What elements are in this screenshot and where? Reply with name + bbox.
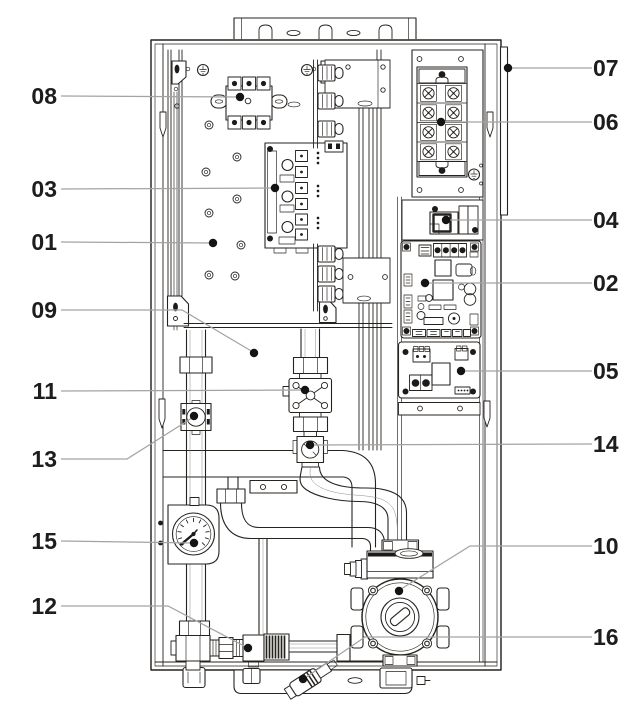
callout-label-14: 14	[593, 431, 619, 457]
callout-label-06: 06	[593, 109, 619, 135]
connector-pcb	[265, 141, 347, 253]
callout-dot-06	[437, 118, 445, 126]
callout-dot-15	[190, 539, 198, 547]
callout-dot-09	[250, 349, 258, 357]
pcb-mounting-strip	[399, 403, 481, 416]
callout-dot-12	[244, 644, 252, 652]
callout-label-12: 12	[31, 593, 57, 619]
callout-label-04: 04	[593, 207, 619, 233]
callout-label-03: 03	[31, 176, 57, 202]
boiler-parts-diagram: 08030109111315120706040205141016	[0, 0, 634, 709]
callout-label-16: 16	[593, 624, 619, 650]
control-pcb	[401, 241, 481, 338]
callout-dot-16	[299, 675, 307, 683]
callout-dot-05	[457, 367, 465, 375]
callout-label-01: 01	[31, 229, 57, 255]
pressure-gauge	[168, 498, 219, 565]
callout-dot-04	[442, 216, 450, 224]
pin-dots	[317, 152, 319, 229]
terminal-block	[412, 50, 483, 197]
callout-label-05: 05	[593, 358, 619, 384]
callout-label-09: 09	[31, 297, 57, 323]
corner-bracket-09	[168, 296, 189, 326]
callout-label-02: 02	[593, 270, 619, 296]
callout-dot-08	[236, 93, 244, 101]
callout-dot-01	[209, 239, 217, 247]
callout-dot-07	[504, 64, 512, 72]
callout-label-10: 10	[593, 533, 619, 559]
callout-dot-14	[306, 441, 314, 449]
pump-valve-11	[283, 379, 332, 413]
callout-label-13: 13	[31, 446, 57, 472]
callout-dot-13	[190, 412, 198, 420]
callout-dot-10	[395, 587, 403, 595]
callout-dot-11	[301, 386, 309, 394]
callout-label-08: 08	[31, 83, 57, 109]
callout-label-15: 15	[31, 528, 57, 554]
expansion-pcb	[399, 342, 481, 398]
callout-label-07: 07	[593, 55, 619, 81]
pipe-clamp-bracket	[250, 481, 297, 494]
callout-label-11: 11	[33, 378, 58, 404]
callout-dot-03	[271, 184, 279, 192]
diagram-canvas: 08030109111315120706040205141016	[0, 0, 634, 709]
check-valve-14	[293, 432, 328, 468]
callout-dot-02	[421, 279, 429, 287]
side-cover-edge	[501, 47, 508, 215]
